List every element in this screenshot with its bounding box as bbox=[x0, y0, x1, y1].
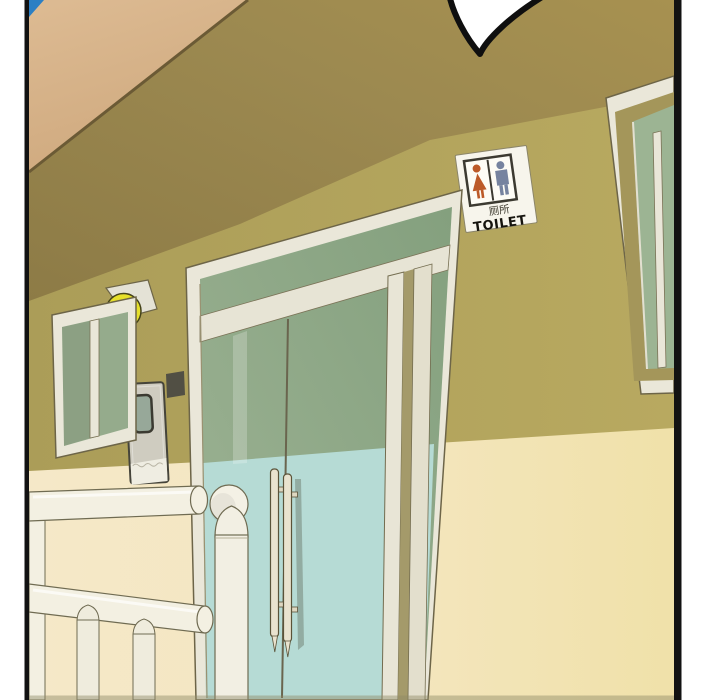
panel-border-right bbox=[674, 0, 682, 700]
left-door-pull bbox=[271, 469, 279, 637]
toilet-sign: 厕所 TOILET bbox=[455, 145, 538, 236]
railing-baluster bbox=[77, 605, 99, 700]
middle-rail-end-cap bbox=[197, 606, 213, 633]
panel-border-left bbox=[25, 0, 30, 700]
page-margin-left bbox=[0, 0, 25, 700]
webtoon-page: 厕所 TOILET bbox=[0, 0, 720, 700]
left-window-mullion bbox=[90, 319, 99, 438]
glass-reflection bbox=[233, 331, 247, 464]
left-window bbox=[52, 297, 136, 458]
page-margin-right bbox=[682, 0, 720, 700]
ground-strip bbox=[29, 696, 674, 700]
railing-corner-post bbox=[215, 535, 248, 700]
right-door-pull bbox=[284, 474, 292, 642]
top-rail-end-cap bbox=[191, 486, 208, 514]
comic-panel-illustration: 厕所 TOILET bbox=[0, 0, 720, 700]
railing-baluster bbox=[133, 619, 155, 700]
left-window-pane-shade bbox=[62, 321, 90, 446]
electrical-box bbox=[166, 371, 185, 398]
